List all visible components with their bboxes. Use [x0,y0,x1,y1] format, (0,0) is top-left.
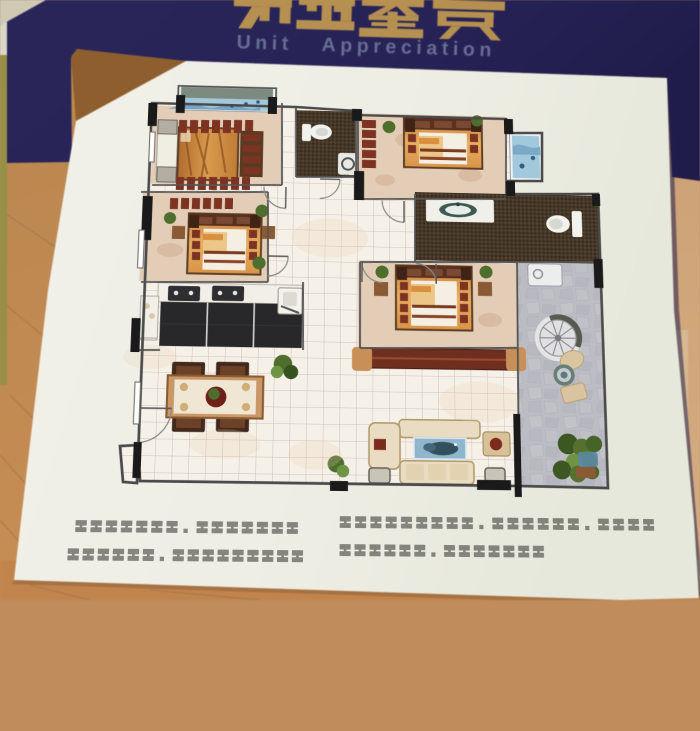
svg-text:Unit: Unit [236,31,293,55]
